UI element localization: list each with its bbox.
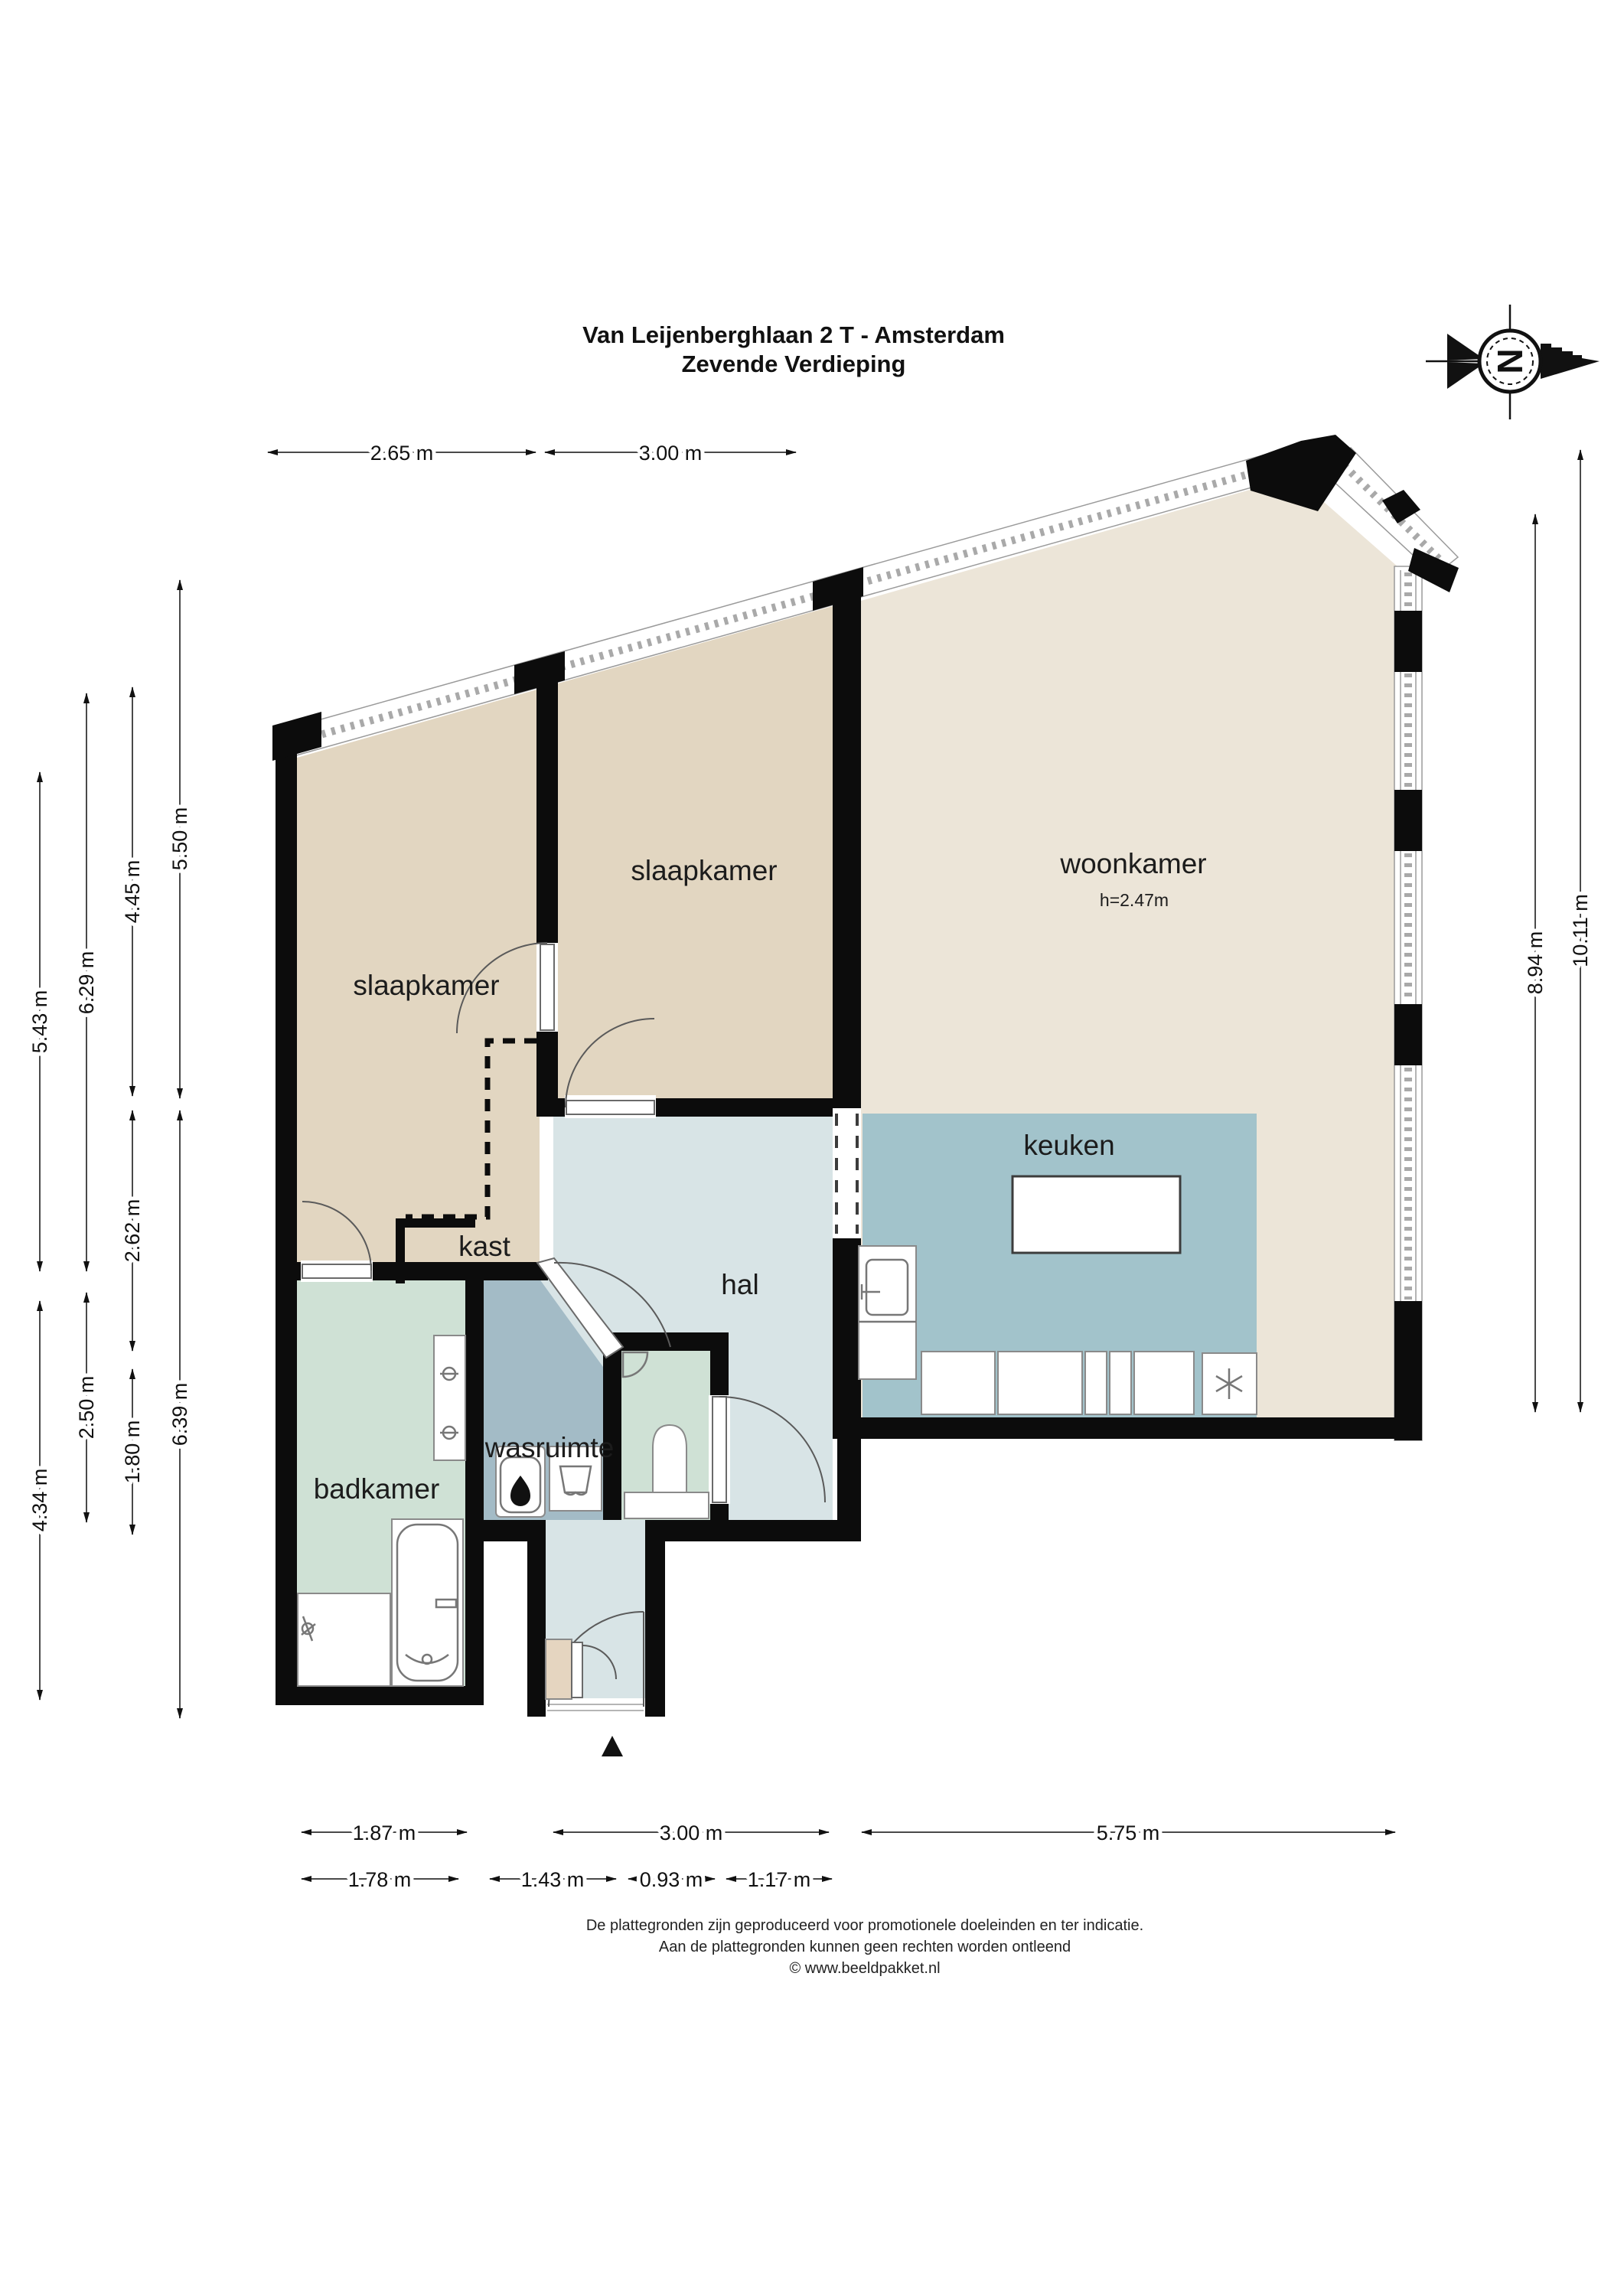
svg-text:0.93 m: 0.93 m (640, 1868, 703, 1891)
svg-text:1.43 m: 1.43 m (521, 1868, 585, 1891)
plan-title: Van Leijenberghlaan 2 T - Amsterdam Zeve… (582, 321, 1005, 377)
meterkast-door-leaf (572, 1642, 582, 1698)
svg-text:2.65 m: 2.65 m (370, 442, 434, 465)
wall-right-chunk3 (1394, 1004, 1422, 1065)
room-slaapkamer-mid-floor (558, 606, 833, 1098)
wall-woonkamer-bottom (837, 1417, 1419, 1439)
kitchen-counter-2 (998, 1352, 1082, 1414)
svg-text:6.39 m: 6.39 m (168, 1383, 191, 1446)
svg-text:1.17 m: 1.17 m (748, 1868, 811, 1891)
kitchen-counter-5 (1134, 1352, 1194, 1414)
label-woonkamer-height: h=2.47m (1100, 890, 1169, 910)
bathtub (392, 1519, 463, 1686)
door-wc-leaf (713, 1397, 726, 1502)
svg-text:1.87 m: 1.87 m (353, 1821, 416, 1844)
svg-text:1.78 m: 1.78 m (348, 1868, 412, 1891)
dim-left3-c: 1.80 m (121, 1369, 144, 1534)
label-keuken: keuken (1023, 1130, 1114, 1161)
wall-partition-woonkamer-upper (833, 580, 861, 1108)
wall-badkamer-bottom (276, 1686, 484, 1705)
wall-partition-slaapkamers-upper (536, 672, 558, 943)
svg-text:1.80 m: 1.80 m (121, 1420, 144, 1484)
wall-left (276, 733, 297, 1705)
label-woonkamer: woonkamer (1059, 848, 1206, 879)
dim-bottom2-a: 1.78 m (302, 1868, 458, 1891)
svg-text:2.50 m: 2.50 m (75, 1376, 98, 1440)
wall-bottom-band-right (645, 1520, 856, 1541)
dim-bottom1-a: 1.87 m (302, 1821, 467, 1844)
label-wasruimte: wasruimte (484, 1432, 615, 1463)
dim-left2-a: 6.29 m (75, 693, 98, 1271)
label-slaapkamer-mid: slaapkamer (631, 855, 777, 886)
dim-top-1: 2.65 m (268, 442, 536, 465)
compass-icon: N (1426, 305, 1600, 419)
floor-plan-canvas: slaapkamer slaapkamer woonkamer h=2.47m … (0, 0, 1624, 2296)
dim-left4-a: 5.50 m (168, 580, 191, 1098)
footer-disclaimer: De plattegronden zijn geproduceerd voor … (586, 1917, 1143, 1977)
svg-text:4.45 m: 4.45 m (121, 860, 144, 924)
dim-bottom2-b: 1.43 m (490, 1868, 616, 1891)
entrance-arrow (602, 1736, 623, 1756)
dim-left1-b: 4.34 m (28, 1301, 51, 1700)
compass-letter: N (1490, 348, 1530, 373)
bathroom-vanity (434, 1336, 465, 1460)
footer-line3: © www.beeldpakket.nl (789, 1960, 940, 1977)
kitchen-island (1013, 1176, 1180, 1253)
dim-left1-a: 5.43 m (28, 772, 51, 1271)
dim-bottom1-b: 3.00 m (553, 1821, 829, 1844)
opening-hal-woonkamer (833, 1108, 861, 1238)
label-kast: kast (458, 1231, 511, 1262)
wall-hal-jog (837, 1439, 861, 1541)
wall-right-chunk1 (1394, 611, 1422, 672)
dim-bottom2-c: 0.93 m (628, 1868, 715, 1891)
meterkast-cabinet (546, 1639, 572, 1699)
svg-text:4.34 m: 4.34 m (28, 1469, 51, 1532)
svg-text:2.62 m: 2.62 m (121, 1199, 144, 1263)
svg-text:5.75 m: 5.75 m (1097, 1821, 1160, 1844)
footer-line2: Aan de plattegronden kunnen geen rechten… (659, 1939, 1071, 1955)
dim-bottom1-c: 5.75 m (862, 1821, 1395, 1844)
dim-right-outer: 10.11 m (1569, 450, 1592, 1412)
door-badkamer-leaf (302, 1264, 371, 1278)
dim-left3-b: 2.62 m (121, 1110, 144, 1351)
dim-top-2: 3.00 m (545, 442, 796, 465)
door-slaapkamers-leaf (540, 944, 554, 1030)
wall-wc-left (603, 1338, 621, 1520)
title-line2: Zevende Verdieping (682, 351, 906, 377)
label-badkamer: badkamer (314, 1473, 440, 1505)
svg-text:3.00 m: 3.00 m (660, 1821, 723, 1844)
svg-text:5.50 m: 5.50 m (168, 807, 191, 871)
dim-left4-b: 6.39 m (168, 1110, 191, 1718)
wall-partition-woonkamer-lower (833, 1238, 861, 1439)
entrance-threshold (546, 1698, 645, 1717)
door-slaapkamer-mid-leaf (566, 1101, 654, 1114)
dim-left3-a: 4.45 m (121, 687, 144, 1096)
svg-text:6.29 m: 6.29 m (75, 951, 98, 1015)
compass-needle (1541, 344, 1600, 379)
title-line1: Van Leijenberghlaan 2 T - Amsterdam (582, 321, 1005, 348)
kitchen-counter-4 (1110, 1352, 1131, 1414)
label-hal: hal (721, 1269, 758, 1300)
dim-right-inner: 8.94 m (1524, 514, 1547, 1412)
kitchen-counter-3 (1085, 1352, 1107, 1414)
footer-line1: De plattegronden zijn geproduceerd voor … (586, 1917, 1143, 1934)
wall-entrance-right (645, 1541, 665, 1717)
wc-shelf (624, 1492, 709, 1518)
kitchen-counter-1 (921, 1352, 995, 1414)
wall-kast-bracket-v (396, 1218, 405, 1283)
wall-bottom-band-left (475, 1520, 546, 1541)
dim-left2-b: 2.50 m (75, 1293, 98, 1522)
wall-entrance-left (527, 1541, 546, 1717)
wall-right-chunk2 (1394, 790, 1422, 851)
svg-text:3.00 m: 3.00 m (639, 442, 703, 465)
label-slaapkamer-left: slaapkamer (353, 970, 499, 1001)
wall-badkamer-right (465, 1271, 484, 1704)
svg-text:8.94 m: 8.94 m (1524, 931, 1547, 995)
svg-text:10.11 m: 10.11 m (1569, 894, 1592, 967)
svg-text:5.43 m: 5.43 m (28, 990, 51, 1054)
wall-kast-bracket-h (396, 1218, 475, 1228)
dim-bottom2-d: 1.17 m (726, 1868, 832, 1891)
toilet (653, 1425, 686, 1492)
